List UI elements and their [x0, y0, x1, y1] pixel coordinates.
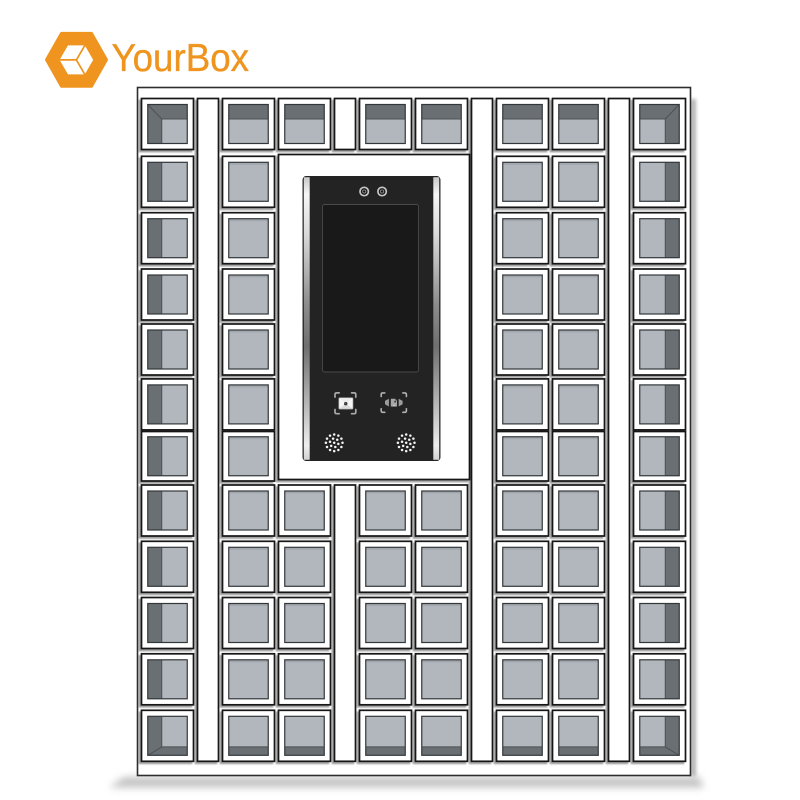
- svg-text:YourBox: YourBox: [112, 37, 250, 80]
